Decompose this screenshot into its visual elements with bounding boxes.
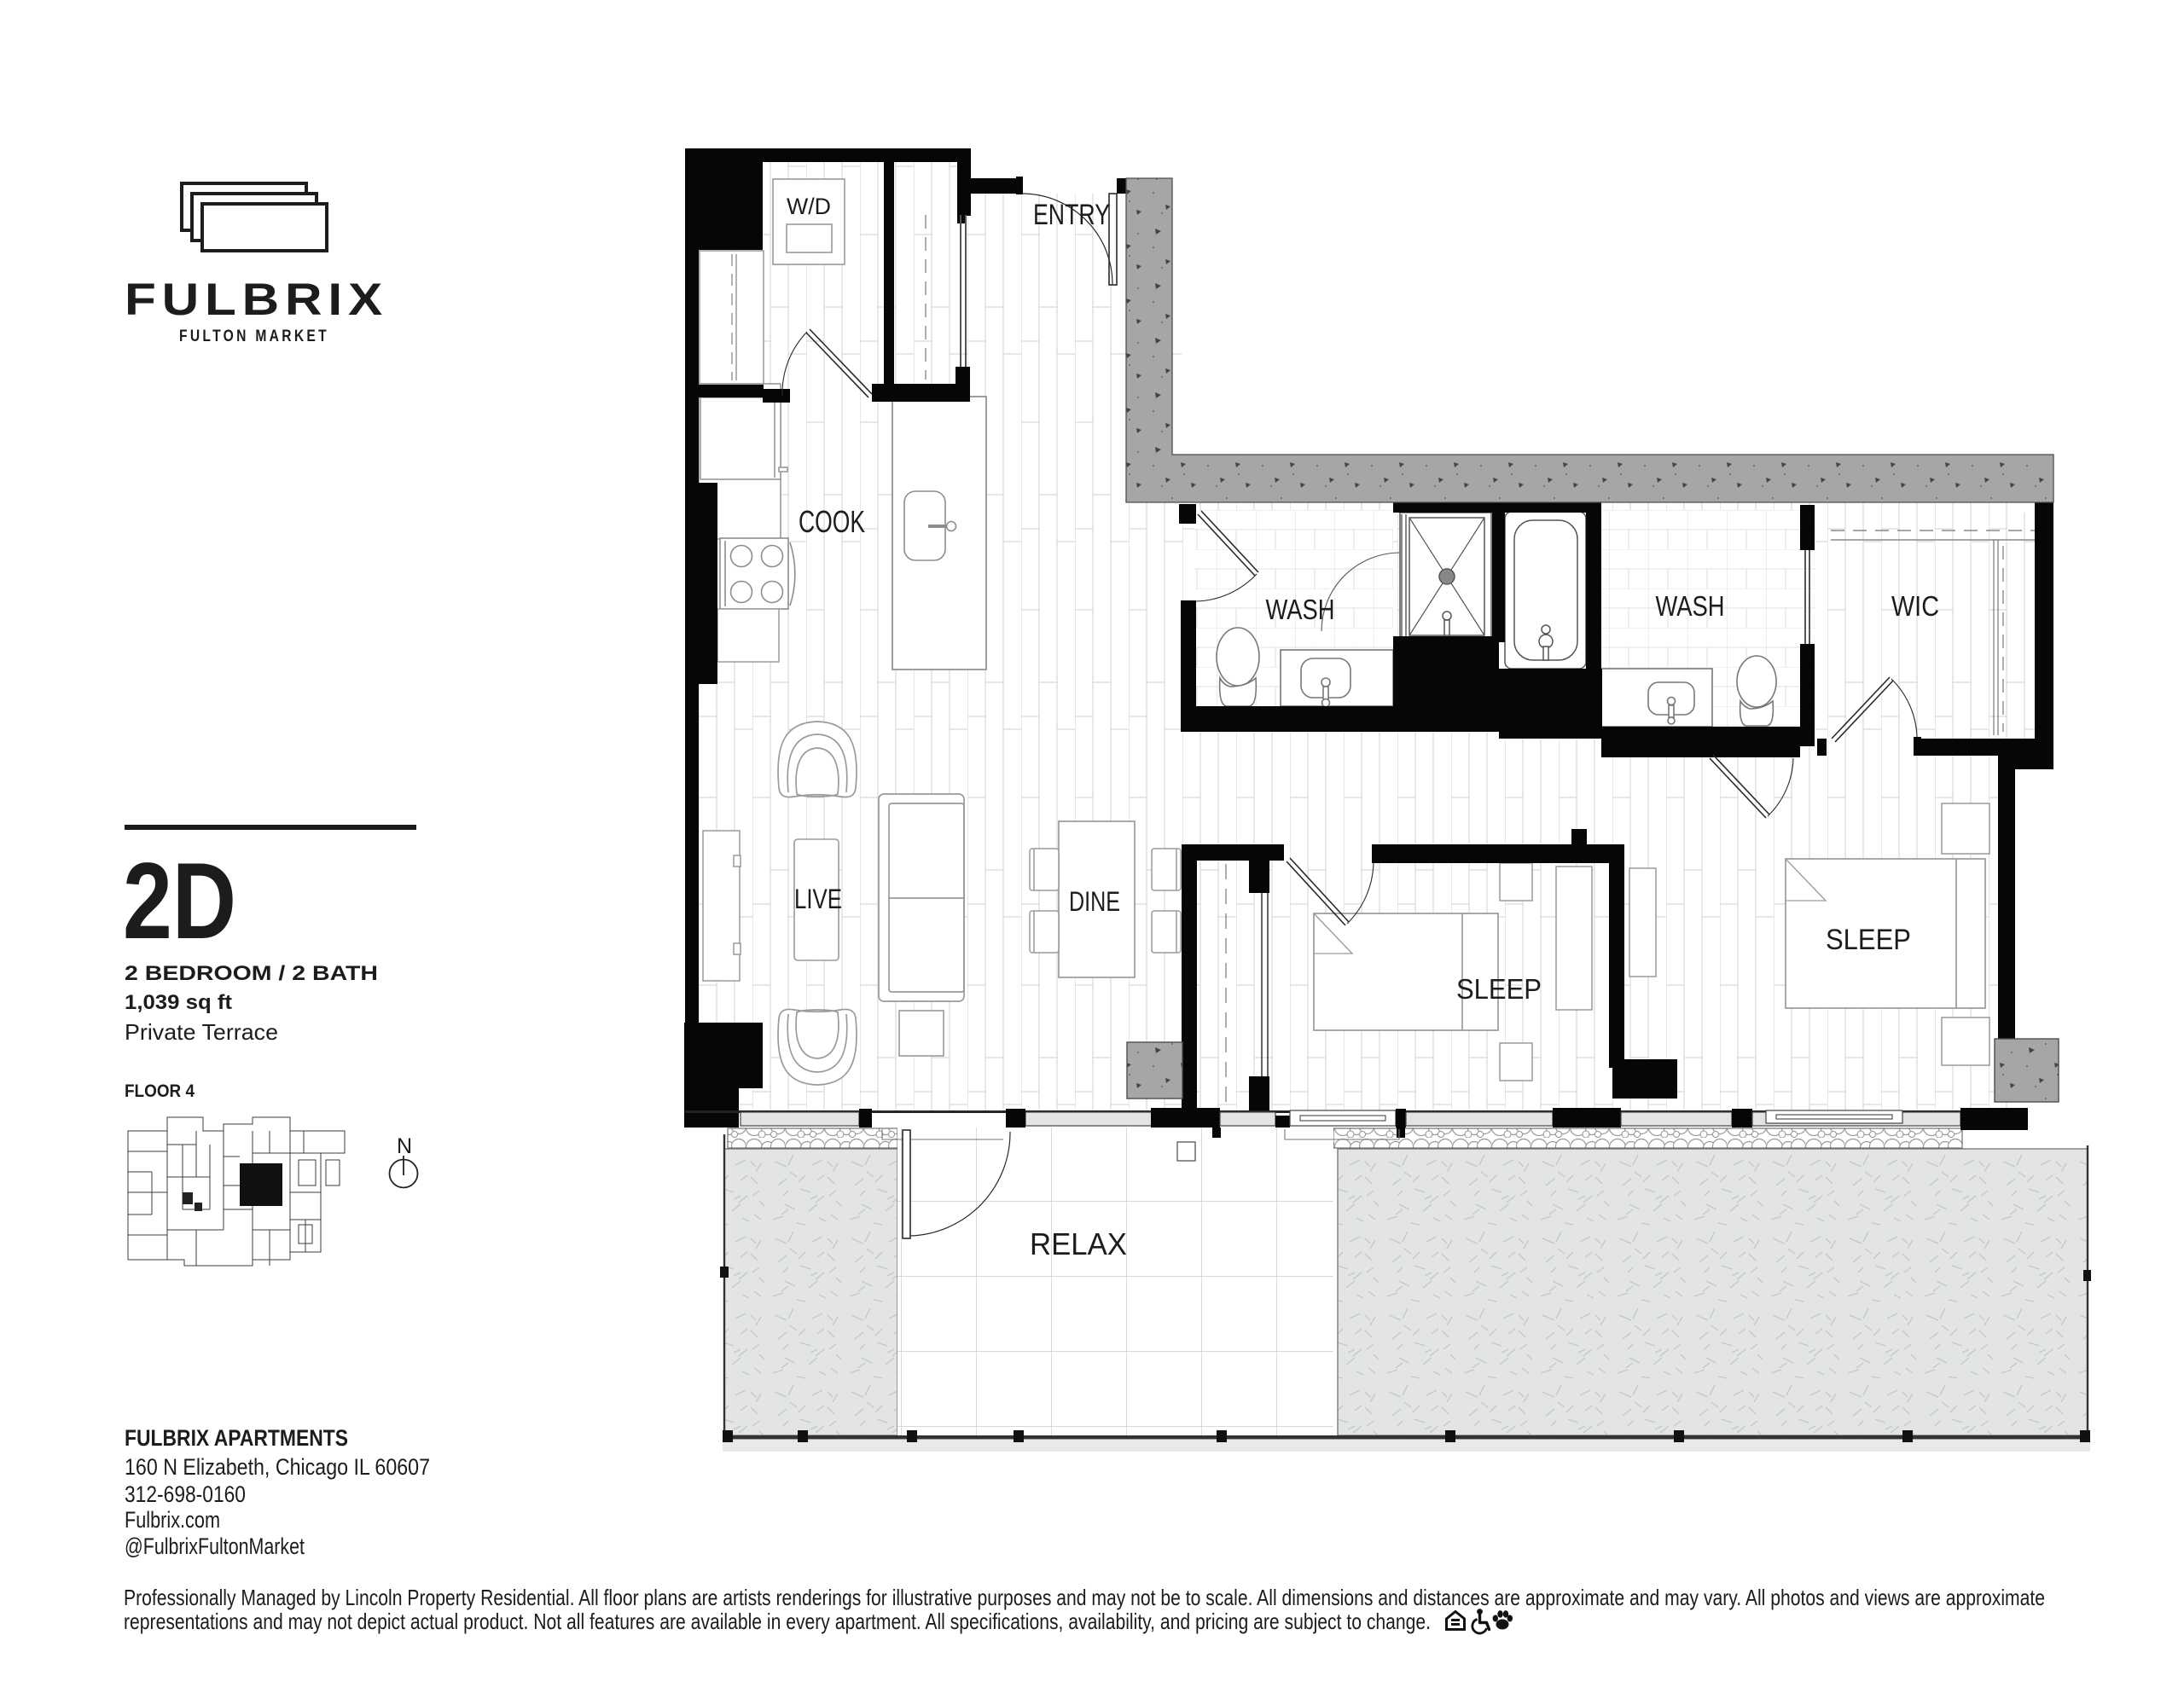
svg-text:FULBRIX APARTMENTS: FULBRIX APARTMENTS [125, 1425, 348, 1451]
svg-text:WASH: WASH [1656, 590, 1725, 622]
svg-text:ENTRY: ENTRY [1033, 199, 1110, 231]
svg-text:FULBRIX: FULBRIX [125, 275, 388, 325]
svg-text:LIVE: LIVE [794, 884, 842, 914]
svg-text:Professionally Managed by Linc: Professionally Managed by Lincoln Proper… [124, 1585, 2045, 1610]
svg-text:160 N Elizabeth, Chicago IL 60: 160 N Elizabeth, Chicago IL 60607 [125, 1454, 430, 1480]
svg-text:FLOOR 4: FLOOR 4 [125, 1081, 195, 1101]
svg-text:312-698-0160: 312-698-0160 [125, 1481, 246, 1507]
svg-text:RELAX: RELAX [1030, 1226, 1127, 1261]
svg-text:COOK: COOK [799, 504, 865, 539]
svg-text:N: N [397, 1134, 412, 1158]
svg-text:W/D: W/D [787, 194, 831, 219]
svg-text:1,039 sq ft: 1,039 sq ft [125, 991, 232, 1014]
svg-text:SLEEP: SLEEP [1826, 924, 1911, 956]
svg-text:representations and may not de: representations and may not depict actua… [124, 1609, 1431, 1634]
svg-text:Private Terrace: Private Terrace [125, 1019, 278, 1045]
svg-text:WASH: WASH [1266, 594, 1335, 625]
svg-text:Fulbrix.com: Fulbrix.com [125, 1507, 220, 1533]
svg-text:DINE: DINE [1069, 886, 1120, 917]
svg-text:FULTON MARKET: FULTON MARKET [179, 328, 329, 345]
svg-text:2D: 2D [123, 840, 236, 961]
svg-text:@FulbrixFultonMarket: @FulbrixFultonMarket [125, 1533, 305, 1559]
svg-text:2 BEDROOM / 2 BATH: 2 BEDROOM / 2 BATH [125, 962, 378, 985]
svg-text:SLEEP: SLEEP [1456, 973, 1542, 1005]
svg-text:WIC: WIC [1891, 590, 1939, 622]
